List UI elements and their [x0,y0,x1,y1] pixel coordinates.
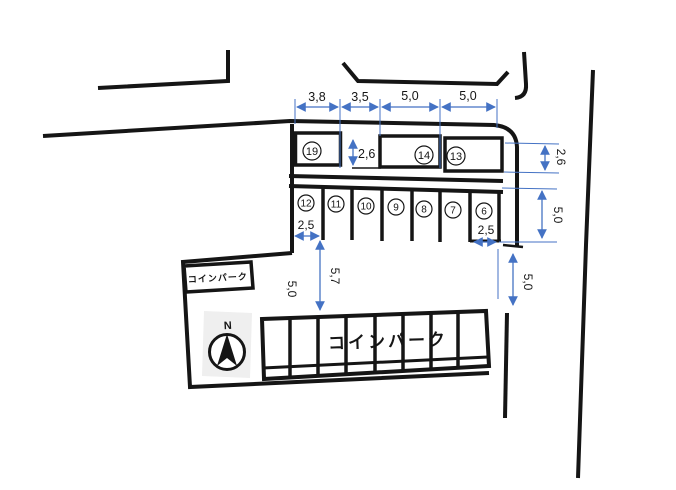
stall-14-number: 14 [418,150,430,162]
dim-extension [505,143,559,144]
dim-50-aisle-right-label: 5,0 [521,274,535,291]
dim-top-3: 5,0 [401,89,418,103]
stall-7-badge: 7 [445,202,461,218]
dim-50-right-label: 5,0 [551,207,565,224]
stall-19-number: 19 [306,146,318,158]
dim-top-4: 5,0 [459,89,476,103]
stall-11-number: 11 [331,200,342,211]
dim-50-aisle-left-label: 5,0 [285,281,299,298]
stall-8-badge: 8 [416,201,432,217]
dim-26-right-label: 2,6 [554,149,568,166]
wall-foot-right [503,245,523,247]
stall-7-number: 7 [450,206,456,217]
dim-top-1: 3,8 [308,90,325,104]
stall-13-number: 13 [450,151,462,163]
compass-north-label: N [224,320,233,332]
stall-10-number: 10 [360,202,372,213]
stall-9-number: 9 [393,203,399,214]
dim-25-right-label: 2,5 [478,223,495,237]
stall-9-badge: 9 [388,199,404,215]
dim-57-label: 5,7 [328,268,342,285]
stall-6-badge: 6 [476,203,492,219]
road-kerb-top-left [98,50,228,88]
dim-top-2: 3,5 [351,90,368,104]
stall-6-number: 6 [481,207,487,218]
site-plan-canvas: コインパーク コインパーク N 19 14 13 12 11 10 9 8 7 [0,0,676,490]
stall-11-badge: 11 [328,196,344,212]
road-corner-curve [515,52,526,98]
stall-12-number: 12 [300,199,312,210]
stall-8-number: 8 [421,205,427,216]
road-edge-right [578,70,593,478]
road-island-top [343,63,508,84]
parking-layout-diagram: コインパーク コインパーク N 19 14 13 12 11 10 9 8 7 [0,0,676,490]
aisle-separator-upper [289,176,503,181]
stall-14-box [380,136,440,167]
stall-10-badge: 10 [358,198,374,214]
dim-26-left-label: 2,6 [358,147,375,161]
dim-25-left-label: 2,5 [298,218,315,232]
dim-extension [504,172,559,173]
dim-extension [502,188,557,189]
lower-lot-right-wall [505,313,507,418]
stall-12-badge: 12 [298,195,314,211]
